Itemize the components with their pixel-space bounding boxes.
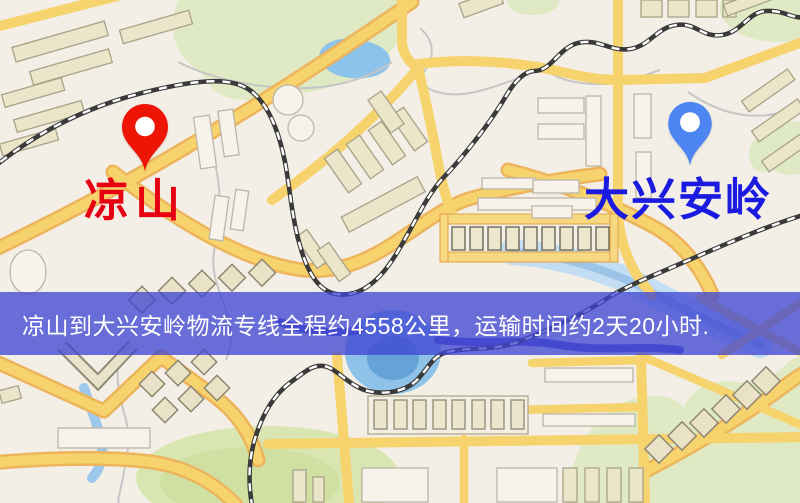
origin-pin-icon[interactable] [119, 102, 171, 174]
route-info-banner: 凉山到大兴安岭物流专线全程约4558公里，运输时间约2天20小时. [0, 292, 800, 355]
route-info-text: 凉山到大兴安岭物流专线全程约4558公里，运输时间约2天20小时. [0, 307, 709, 341]
destination-pin-icon[interactable] [663, 100, 717, 168]
destination-label: 大兴安岭 [584, 178, 772, 223]
logistics-map: 凉山 大兴安岭 凉山到大兴安岭物流专线全程约4558公里，运输时间约2天20小时… [0, 0, 800, 503]
origin-label: 凉山 [84, 179, 186, 224]
map-canvas [0, 0, 800, 503]
